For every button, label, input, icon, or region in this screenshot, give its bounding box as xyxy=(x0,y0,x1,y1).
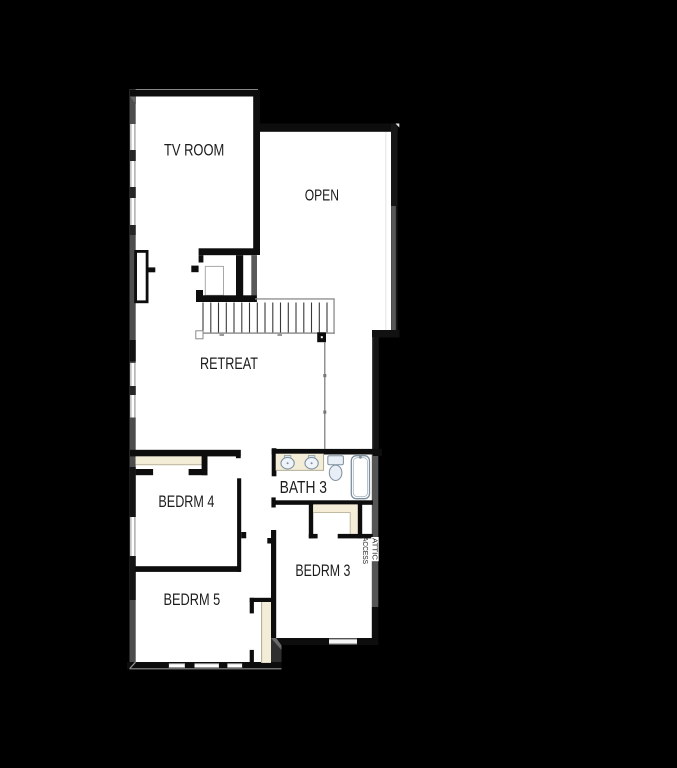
svg-text:BEDRM 5: BEDRM 5 xyxy=(164,590,221,609)
svg-text:OPEN: OPEN xyxy=(305,188,339,205)
svg-text:TV ROOM: TV ROOM xyxy=(164,142,224,160)
svg-text:ACCESS: ACCESS xyxy=(361,537,368,564)
svg-text:BEDRM 3: BEDRM 3 xyxy=(295,562,350,580)
svg-text:BATH 3: BATH 3 xyxy=(280,477,327,497)
svg-text:RETREAT: RETREAT xyxy=(200,355,258,373)
svg-text:BEDRM 4: BEDRM 4 xyxy=(158,493,214,511)
svg-text:ATTIC: ATTIC xyxy=(370,538,377,560)
